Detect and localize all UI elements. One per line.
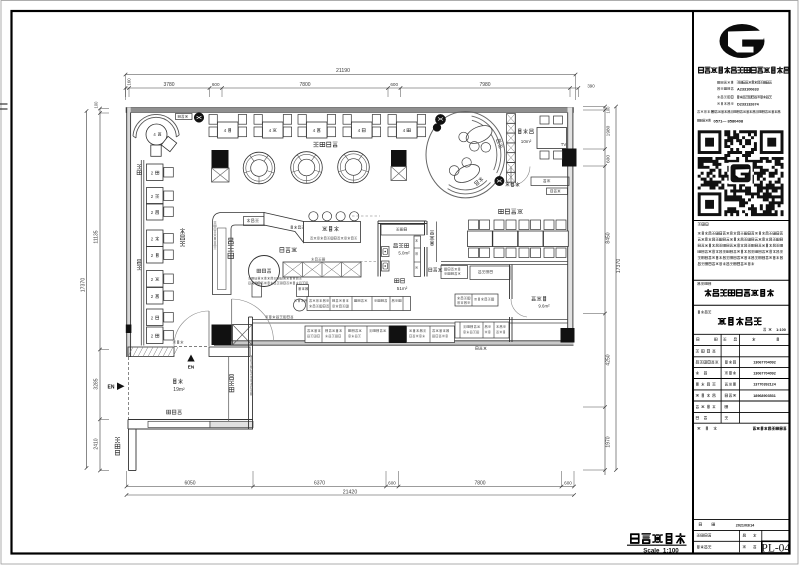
svg-text:13067704092: 13067704092	[753, 371, 776, 375]
svg-text:3285: 3285	[94, 378, 100, 389]
svg-text:100: 100	[606, 106, 611, 114]
svg-text:6050: 6050	[184, 481, 195, 487]
svg-text:600: 600	[212, 82, 220, 87]
svg-text:8450: 8450	[606, 232, 612, 243]
svg-text:13067704092: 13067704092	[753, 361, 776, 365]
svg-text:2021/03/14: 2021/03/14	[736, 523, 755, 527]
svg-text:17370: 17370	[81, 278, 87, 293]
svg-text:11135: 11135	[94, 230, 100, 243]
svg-text:17370: 17370	[616, 259, 622, 274]
svg-text:600: 600	[564, 481, 572, 486]
svg-text:7800: 7800	[299, 82, 310, 88]
svg-text:100: 100	[94, 101, 99, 109]
svg-text:160: 160	[127, 78, 132, 86]
svg-text:2410: 2410	[94, 438, 100, 449]
svg-text:18968903531: 18968903531	[753, 394, 776, 398]
svg-text:Scale 1:100: Scale 1:100	[643, 547, 679, 554]
svg-text:390: 390	[587, 84, 595, 89]
svg-text:TV: TV	[561, 142, 567, 147]
svg-text:D233132674: D233132674	[737, 102, 760, 106]
svg-text:1:100: 1:100	[776, 328, 786, 332]
svg-text:21420: 21420	[343, 490, 358, 496]
svg-text:51m²: 51m²	[397, 286, 408, 291]
svg-text:4250: 4250	[606, 354, 612, 365]
svg-text:19m²: 19m²	[173, 387, 185, 393]
svg-text:13770392124: 13770392124	[753, 383, 777, 387]
svg-text:1970: 1970	[606, 436, 612, 447]
svg-text:PL-04: PL-04	[761, 542, 790, 554]
svg-text:21190: 21190	[336, 68, 350, 74]
svg-text:1980: 1980	[606, 125, 612, 136]
svg-text:6370: 6370	[314, 481, 325, 487]
svg-text:9.6m²: 9.6m²	[538, 304, 550, 309]
svg-text:7980: 7980	[479, 82, 490, 88]
svg-text:5.0m²: 5.0m²	[398, 251, 410, 256]
svg-text:A233100633: A233100633	[737, 87, 759, 91]
svg-text:7800: 7800	[474, 481, 485, 487]
svg-text:EN: EN	[188, 365, 195, 370]
svg-text:0571— 8580408: 0571— 8580408	[714, 119, 744, 124]
svg-text:3780: 3780	[163, 82, 174, 88]
svg-text:600: 600	[390, 82, 398, 87]
svg-text:600: 600	[606, 155, 612, 163]
svg-text:600: 600	[388, 481, 396, 486]
svg-text:10m²: 10m²	[521, 139, 532, 144]
svg-text:EN: EN	[108, 385, 115, 391]
